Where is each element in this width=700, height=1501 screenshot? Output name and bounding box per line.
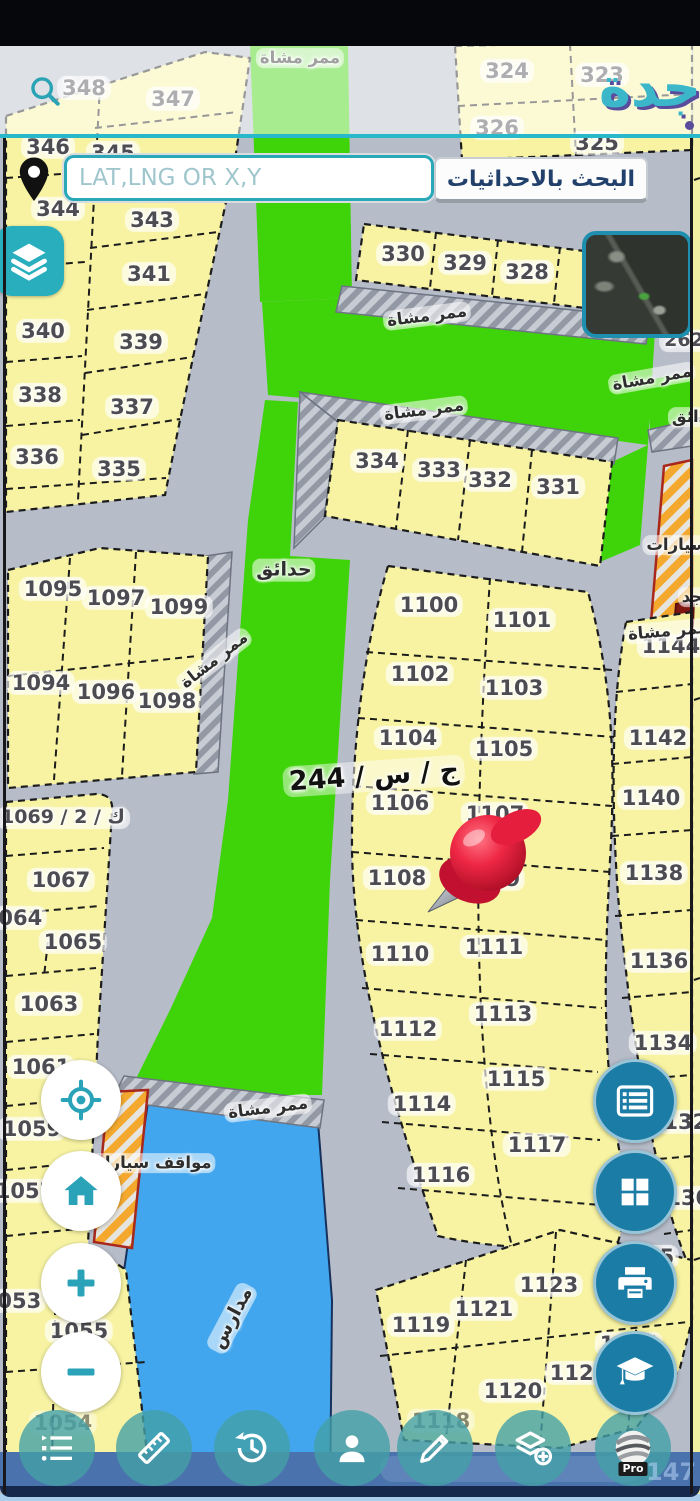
profile-button[interactable] [314, 1410, 390, 1486]
courses-button[interactable] [593, 1331, 677, 1415]
zoom-out-button[interactable] [41, 1332, 121, 1412]
ruler-icon [133, 1427, 175, 1469]
header-overlay [0, 46, 700, 137]
plus-icon [62, 1264, 100, 1302]
home-icon [60, 1170, 102, 1212]
home-button[interactable] [41, 1151, 121, 1231]
minus-icon [62, 1353, 100, 1391]
watermark-number: 147 [646, 1458, 696, 1486]
coordinates-search-input[interactable] [64, 155, 434, 201]
header-divider [0, 134, 700, 138]
logo-dot-icon [685, 121, 694, 130]
app-logo-text: جدة [599, 61, 700, 115]
app-logo: جدة [602, 44, 698, 132]
print-button[interactable] [593, 1241, 677, 1325]
graduation-cap-icon [614, 1352, 656, 1394]
locate-me-button[interactable] [41, 1060, 121, 1140]
search-icon[interactable] [28, 74, 62, 108]
map-pin-marker[interactable] [400, 800, 560, 940]
zoom-in-button[interactable] [41, 1243, 121, 1323]
parcel-list-button[interactable] [593, 1059, 677, 1143]
footer-navy-bar [0, 1486, 700, 1497]
status-bar [0, 0, 700, 46]
person-icon [332, 1428, 372, 1468]
search-by-coordinates-button[interactable]: البحث بالاحداثيات [434, 157, 648, 203]
parcel-list-icon [614, 1080, 656, 1122]
layers-icon [7, 239, 51, 283]
map-frame-right [690, 138, 693, 1494]
app-screen: 3483473243233263253463453443433413403393… [0, 0, 700, 1501]
menu-list-button[interactable] [19, 1410, 95, 1486]
pro-badge: Pro [618, 1462, 647, 1476]
pencil-icon [415, 1428, 455, 1468]
draw-button[interactable] [397, 1410, 473, 1486]
layers-button[interactable] [0, 226, 64, 296]
measure-button[interactable] [116, 1410, 192, 1486]
map-frame-left [3, 138, 6, 1494]
layers-plus-icon [512, 1427, 554, 1469]
history-clock-icon [231, 1427, 273, 1469]
locate-icon [59, 1078, 103, 1122]
grid-icon [615, 1172, 655, 1212]
grid-view-button[interactable] [593, 1150, 677, 1234]
bullet-list-icon [37, 1428, 77, 1468]
history-button[interactable] [214, 1410, 290, 1486]
add-layer-button[interactable] [495, 1410, 571, 1486]
location-pin-icon [16, 156, 52, 204]
satellite-preview[interactable] [582, 231, 692, 338]
printer-icon [615, 1263, 655, 1303]
